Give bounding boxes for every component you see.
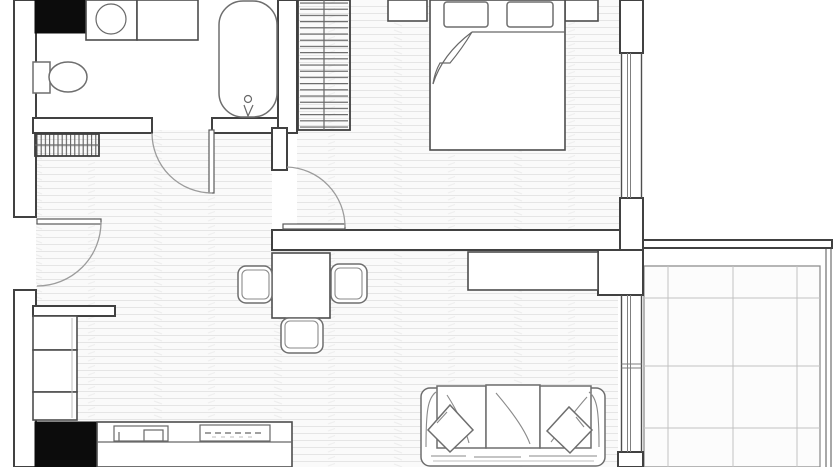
east-corner-block <box>620 198 643 250</box>
dining-chair-right <box>331 264 367 303</box>
refrigerator-unit <box>35 422 97 467</box>
sofa <box>421 385 605 466</box>
bathtub <box>219 1 277 117</box>
double-bed <box>430 0 565 150</box>
bedroom-window <box>622 53 642 198</box>
dining-chair-bottom <box>281 318 323 353</box>
living-east-pier <box>598 250 643 295</box>
bathroom-counter <box>137 0 198 40</box>
balcony-north-wall <box>643 240 832 248</box>
kitchen-partition-stub <box>33 306 115 316</box>
living-east-wall-bottom <box>618 452 643 467</box>
bathroom-south-wall-west <box>33 118 152 133</box>
washing-machine <box>86 0 137 40</box>
floor-plan-canvas <box>0 0 835 467</box>
sideboard <box>468 252 598 290</box>
bedroom-east-wall <box>620 0 643 53</box>
hallway-radiator <box>35 134 99 156</box>
bedroom-living-wall <box>272 230 620 250</box>
left-wall-upper <box>14 0 36 217</box>
wardrobe <box>298 0 350 130</box>
floor-plan <box>0 0 835 467</box>
bathroom-bedroom-wall <box>278 0 297 133</box>
bathroom-storage-unit <box>35 0 85 33</box>
dining-table <box>272 253 330 318</box>
balcony-tile-floor <box>644 266 820 467</box>
kitchen-counter <box>97 422 292 467</box>
kitchen-cabinets <box>33 316 77 420</box>
nightstand-left <box>388 0 427 21</box>
nightstand-right <box>565 0 598 21</box>
balcony <box>644 248 831 467</box>
dining-chair-left <box>238 266 272 303</box>
toilet <box>33 62 87 93</box>
hallway-bedroom-wall <box>272 128 287 170</box>
balcony-railing <box>826 248 831 467</box>
living-room-window <box>622 295 642 452</box>
